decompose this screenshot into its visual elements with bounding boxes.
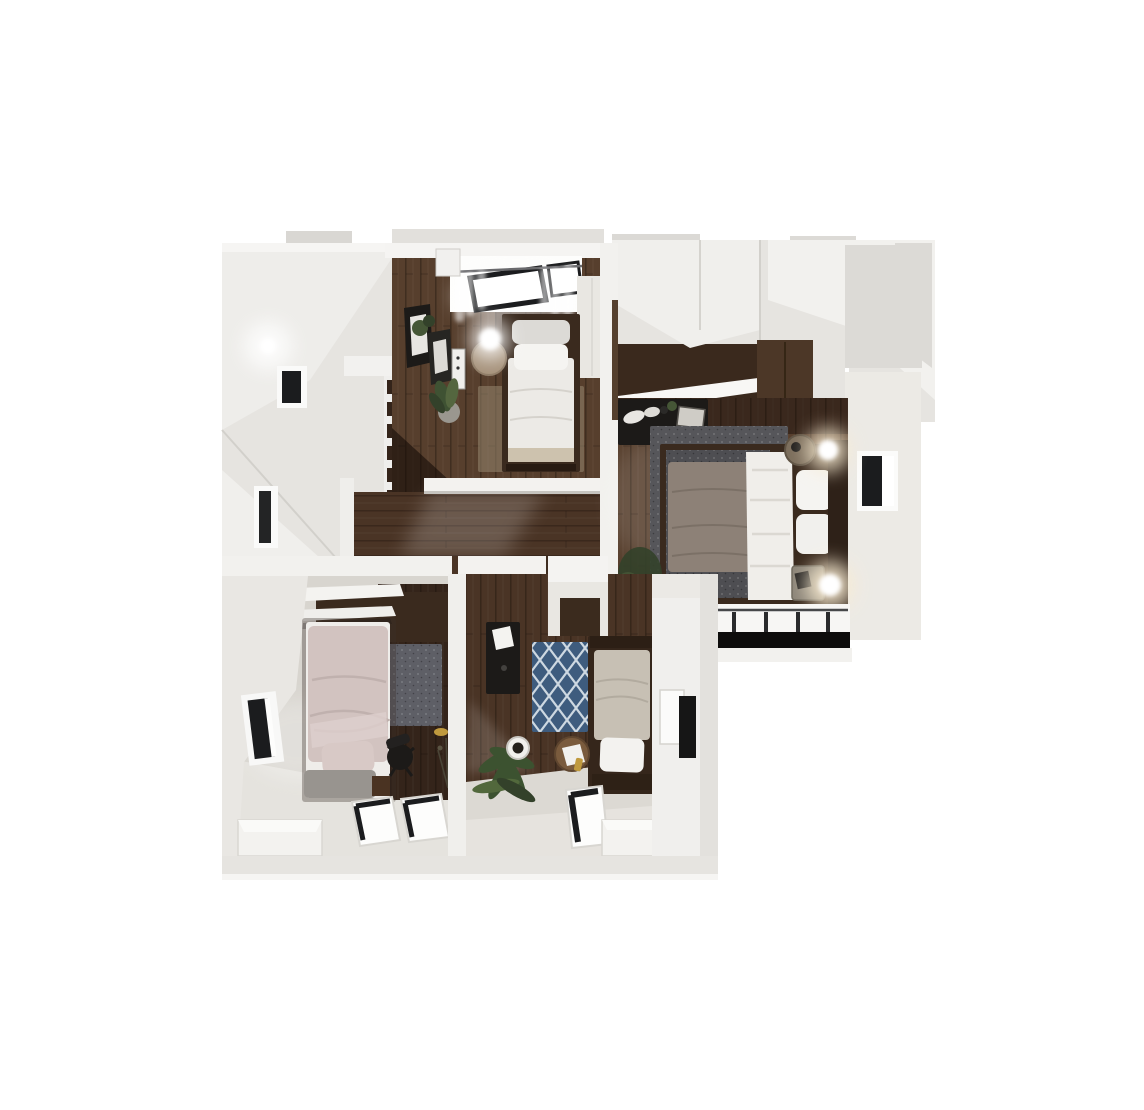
window-glazing <box>259 491 271 543</box>
single-bed-center <box>588 636 654 794</box>
dresser-frame-art <box>677 406 705 428</box>
bed-duvet-white <box>508 358 574 452</box>
mullion <box>764 612 768 632</box>
bedroom-top-wall <box>385 243 612 258</box>
bed-footboard <box>506 464 576 471</box>
wooden-stool <box>555 737 589 772</box>
stairwell-top-wall <box>222 243 392 252</box>
curtain <box>477 270 486 310</box>
blue-trellis-rug <box>532 642 588 732</box>
glowing-lamp <box>818 440 838 460</box>
wall-gap <box>845 368 849 372</box>
dresser-vase <box>660 406 668 414</box>
organizer-dot <box>456 366 459 369</box>
desk-plant <box>423 315 435 327</box>
floorplan-3d-render <box>0 0 1144 1110</box>
curtain <box>551 268 560 316</box>
duvet-white <box>746 452 794 600</box>
single-bed-top <box>502 314 580 472</box>
bedroom-top-wall <box>222 556 452 576</box>
frame-print <box>433 339 448 374</box>
glowing-lamp <box>479 328 501 350</box>
pillow <box>599 737 644 773</box>
footboard <box>590 636 654 648</box>
bedroom-top <box>385 243 612 492</box>
rug-pattern <box>532 642 588 732</box>
slate-rug-texture <box>388 644 442 726</box>
wall-wood-face <box>612 300 618 420</box>
stair-half-wall <box>344 356 396 376</box>
bench-cushion <box>304 770 376 798</box>
mullion <box>796 612 800 632</box>
gold-decor <box>434 728 448 736</box>
curtain <box>563 266 573 318</box>
window-sash <box>862 456 882 506</box>
master-right-wall <box>845 245 922 640</box>
wall-top-strip <box>286 231 352 244</box>
window-glazing <box>282 371 301 403</box>
side-table-lamp <box>470 319 510 375</box>
wall-lamp <box>260 338 276 354</box>
stairwell-window-tall <box>254 486 278 548</box>
skylight-window <box>450 256 582 322</box>
bottom-wall-highlight <box>222 874 718 880</box>
black-desk <box>486 622 520 694</box>
curtain <box>540 268 549 310</box>
stairwell-window-small <box>277 366 307 408</box>
outer-wall-strip <box>700 574 718 868</box>
organizer-dot <box>456 356 459 359</box>
dark-wall-panel <box>679 696 696 758</box>
bedroom-bottom-center <box>448 556 718 868</box>
bedroom-bottom-left <box>222 556 462 858</box>
outer-walls-bottom <box>222 856 718 880</box>
bed-frame-corner <box>372 776 390 796</box>
curtain <box>455 272 464 322</box>
plant-bud <box>438 746 443 751</box>
ac-unit <box>436 249 460 276</box>
bedroom-right-wall <box>652 574 718 868</box>
closet-opening <box>560 598 600 636</box>
wall-top-strip <box>392 229 604 244</box>
floorplan-canvas <box>0 0 1144 1110</box>
divider-wall <box>448 574 466 862</box>
back-pillow <box>512 320 570 344</box>
duvet-greige <box>594 650 650 740</box>
pillow <box>514 344 568 370</box>
master-window-right <box>857 451 898 511</box>
curtain <box>466 272 474 316</box>
planter-soil <box>513 743 524 754</box>
pillow <box>796 470 832 510</box>
single-bed-pink <box>302 618 396 802</box>
box-top-face <box>238 820 322 832</box>
closet-top-face <box>548 556 608 582</box>
nightstand-decor <box>791 442 801 452</box>
desk-paper <box>492 626 514 650</box>
closet-vestibule <box>548 556 608 636</box>
dresser-plant <box>667 401 677 411</box>
storage-box <box>238 820 322 856</box>
right-wall-upper <box>845 245 922 368</box>
folded-blanket <box>508 448 574 462</box>
pillow <box>796 514 832 554</box>
glowing-lamp <box>819 574 841 596</box>
mullion <box>732 612 736 632</box>
desk-item <box>501 665 507 671</box>
wall-shadow-line <box>424 491 612 494</box>
window-glazing <box>882 456 894 506</box>
mullion <box>826 612 830 632</box>
